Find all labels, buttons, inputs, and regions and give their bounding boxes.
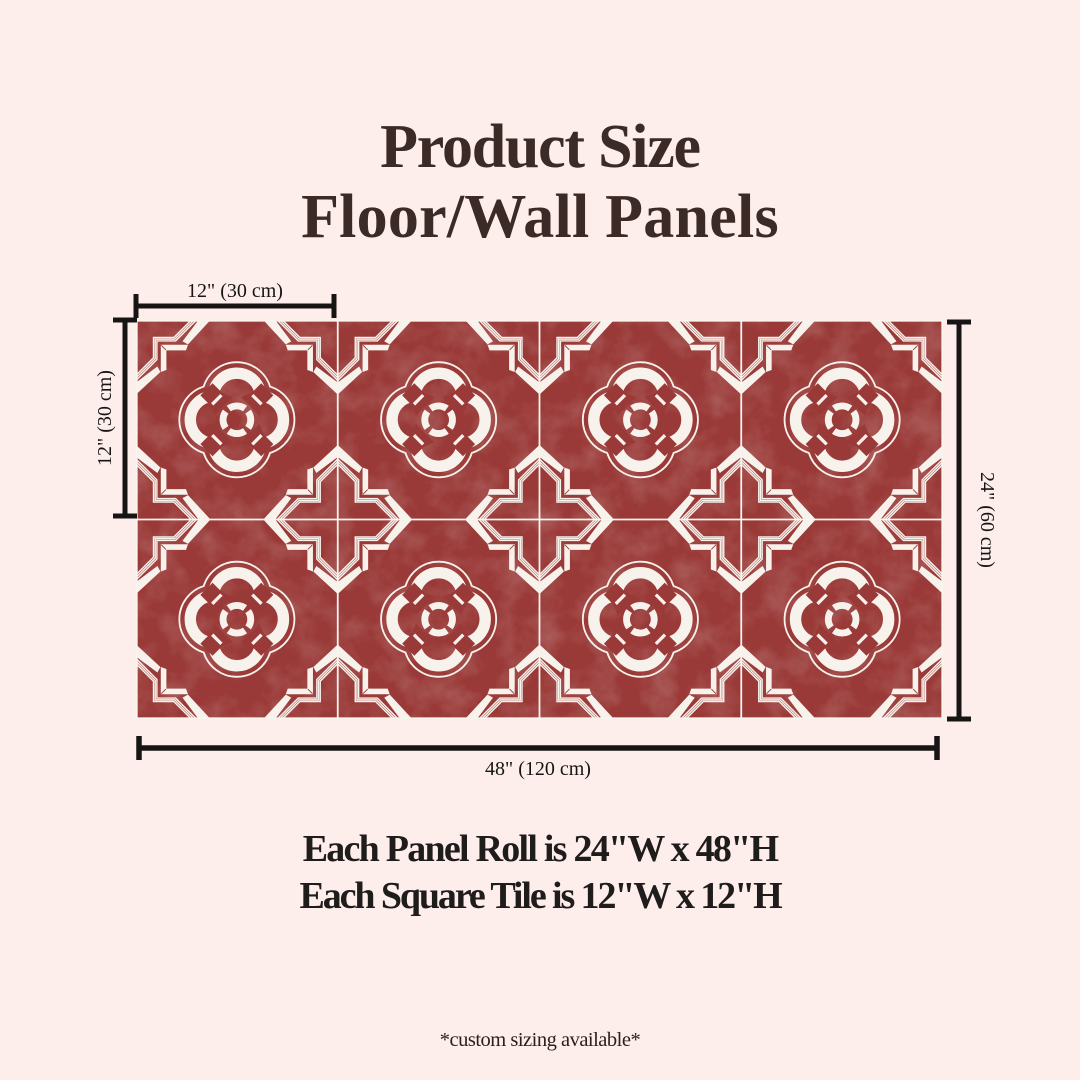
svg-text:12" (30 cm): 12" (30 cm) xyxy=(94,370,116,466)
svg-text:24" (60 cm): 24" (60 cm) xyxy=(976,472,998,568)
svg-text:48" (120 cm): 48" (120 cm) xyxy=(485,758,591,780)
svg-text:12" (30 cm): 12" (30 cm) xyxy=(187,280,283,302)
